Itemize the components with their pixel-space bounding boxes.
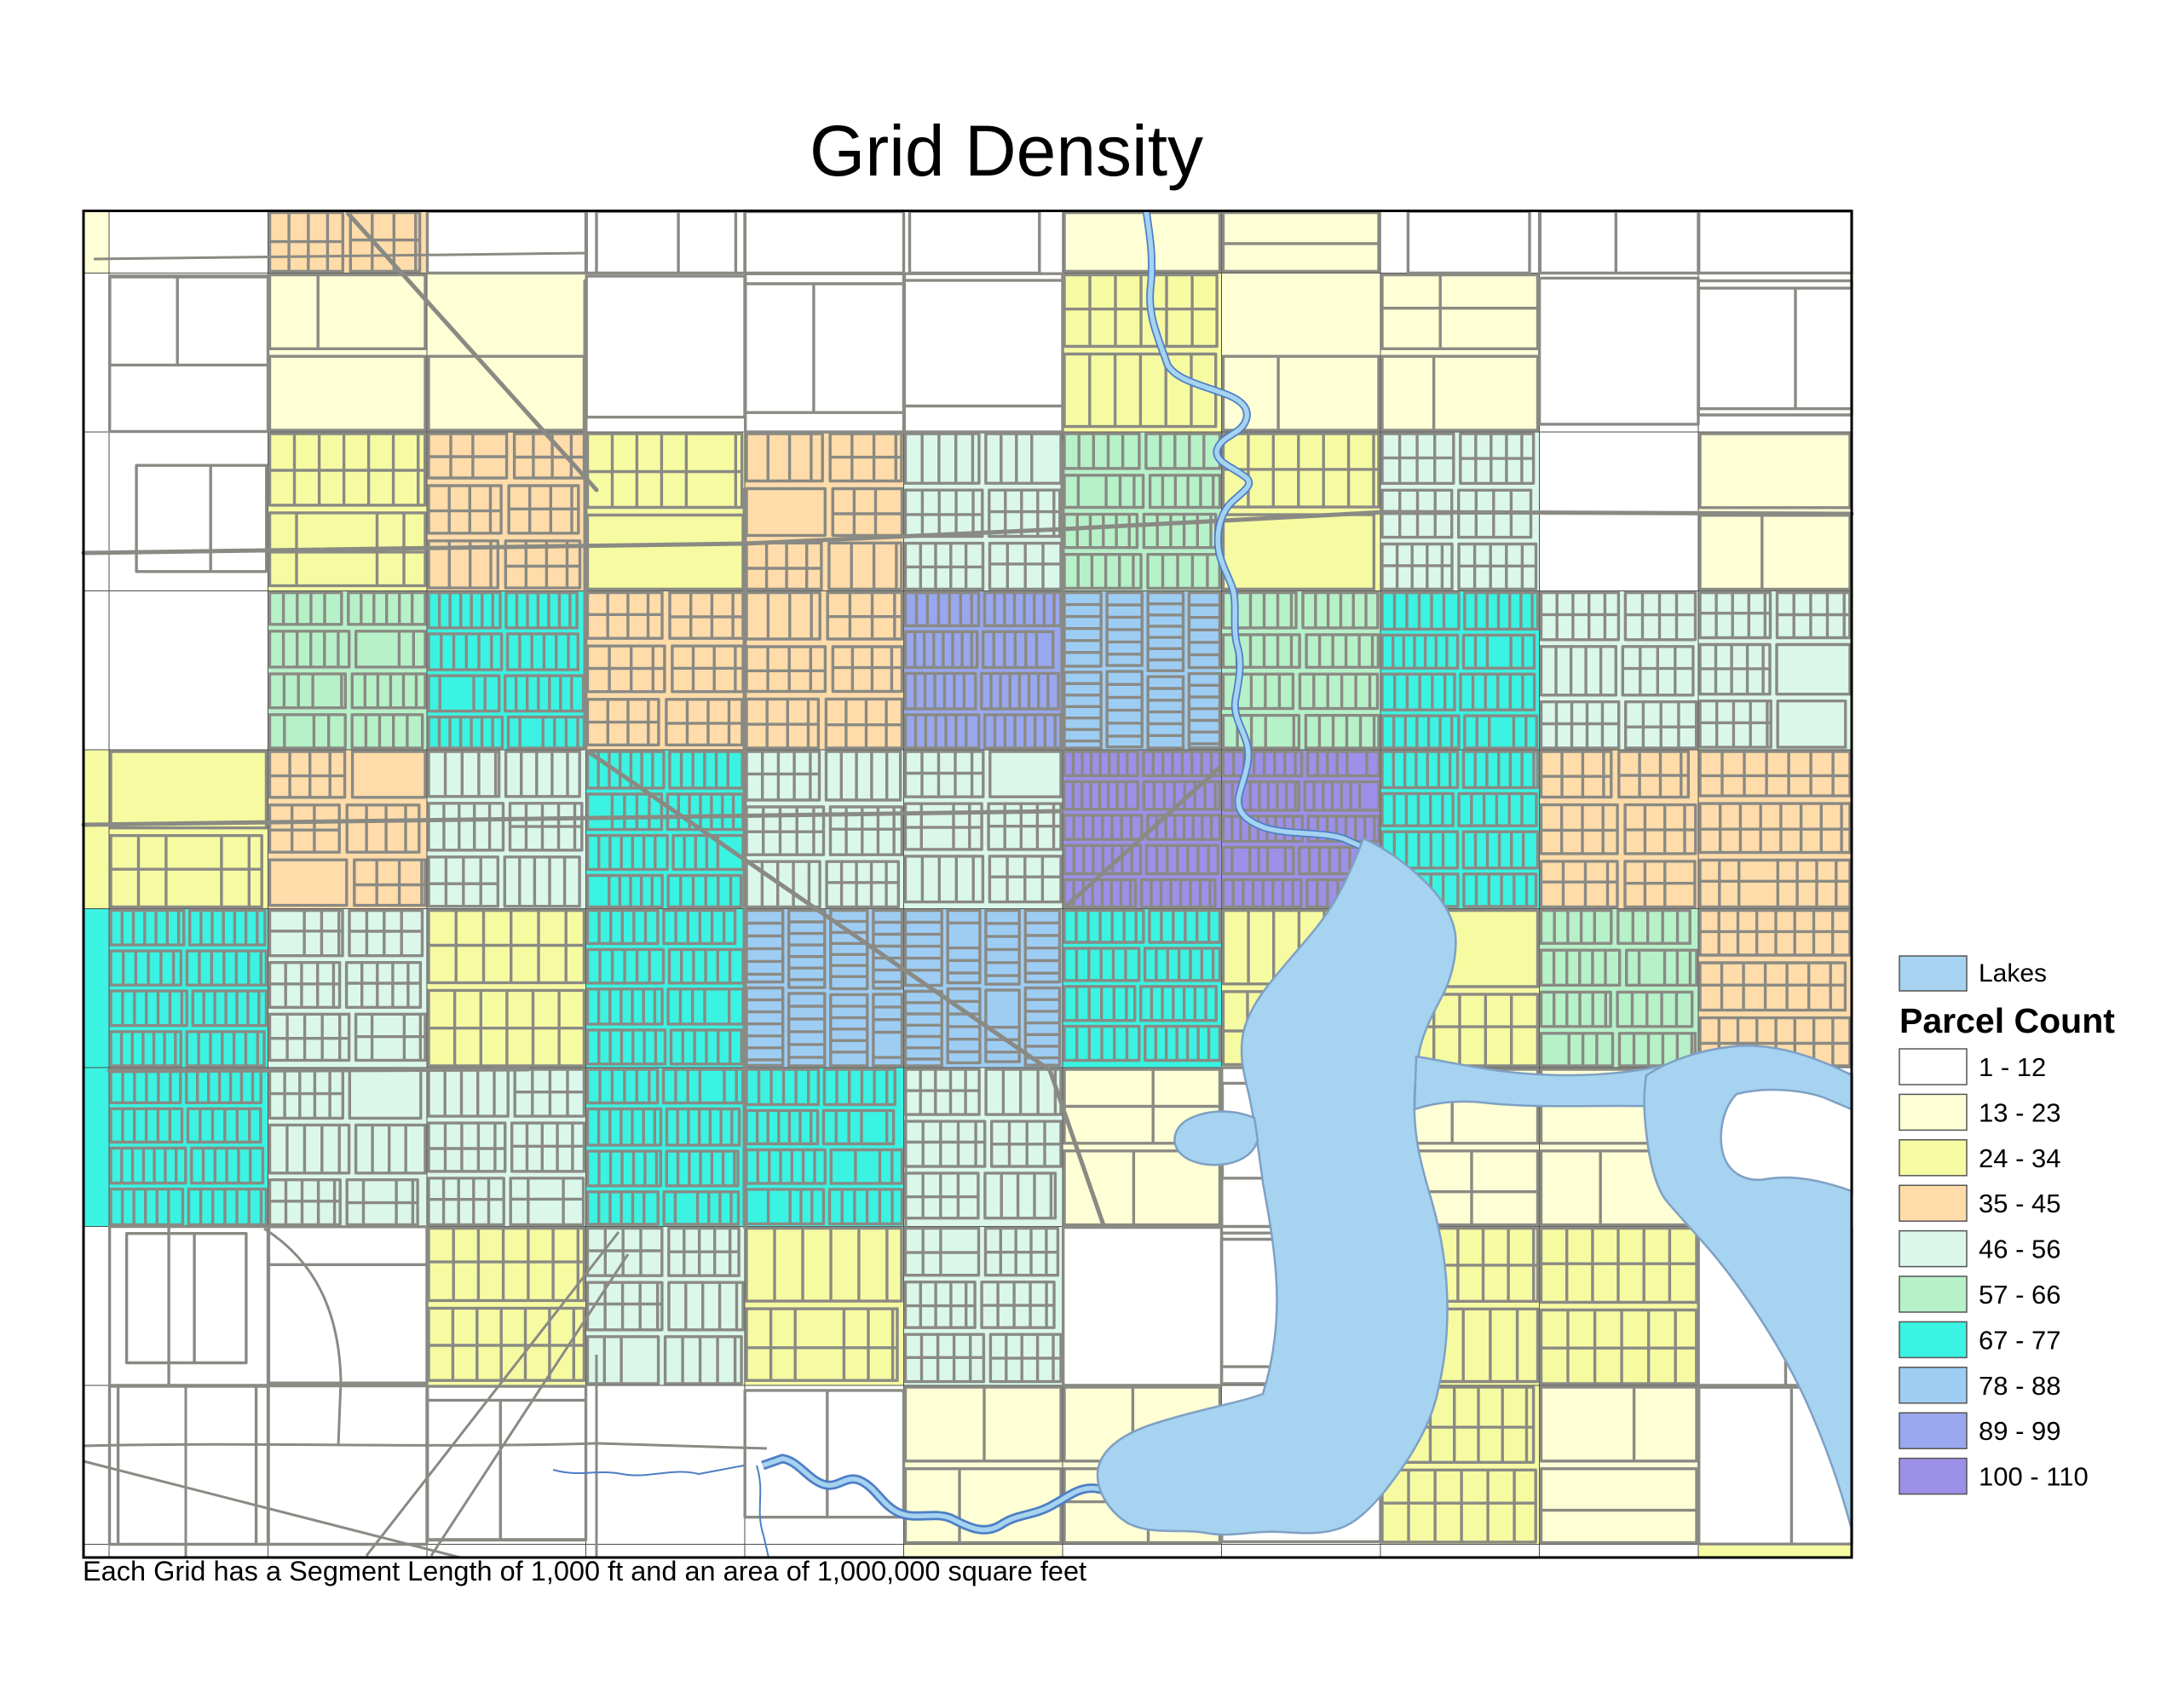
svg-text:Grid Density: Grid Density <box>810 111 1203 191</box>
svg-text:1 - 12: 1 - 12 <box>1979 1052 2046 1082</box>
svg-text:13 - 23: 13 - 23 <box>1979 1097 2061 1127</box>
svg-text:35 - 45: 35 - 45 <box>1979 1189 2061 1218</box>
svg-text:100 - 110: 100 - 110 <box>1979 1462 2089 1492</box>
svg-text:Each Grid has a Segment Length: Each Grid has a Segment Length of 1,000 … <box>83 1556 1086 1586</box>
svg-text:57 - 66: 57 - 66 <box>1979 1280 2061 1310</box>
svg-text:24 - 34: 24 - 34 <box>1979 1143 2061 1173</box>
svg-text:Lakes: Lakes <box>1979 959 2047 987</box>
svg-text:46 - 56: 46 - 56 <box>1979 1235 2061 1264</box>
svg-text:67 - 77: 67 - 77 <box>1979 1325 2061 1355</box>
svg-text:78 - 88: 78 - 88 <box>1979 1371 2061 1401</box>
svg-text:Parcel Count: Parcel Count <box>1899 1001 2115 1040</box>
svg-text:89 - 99: 89 - 99 <box>1979 1416 2061 1446</box>
